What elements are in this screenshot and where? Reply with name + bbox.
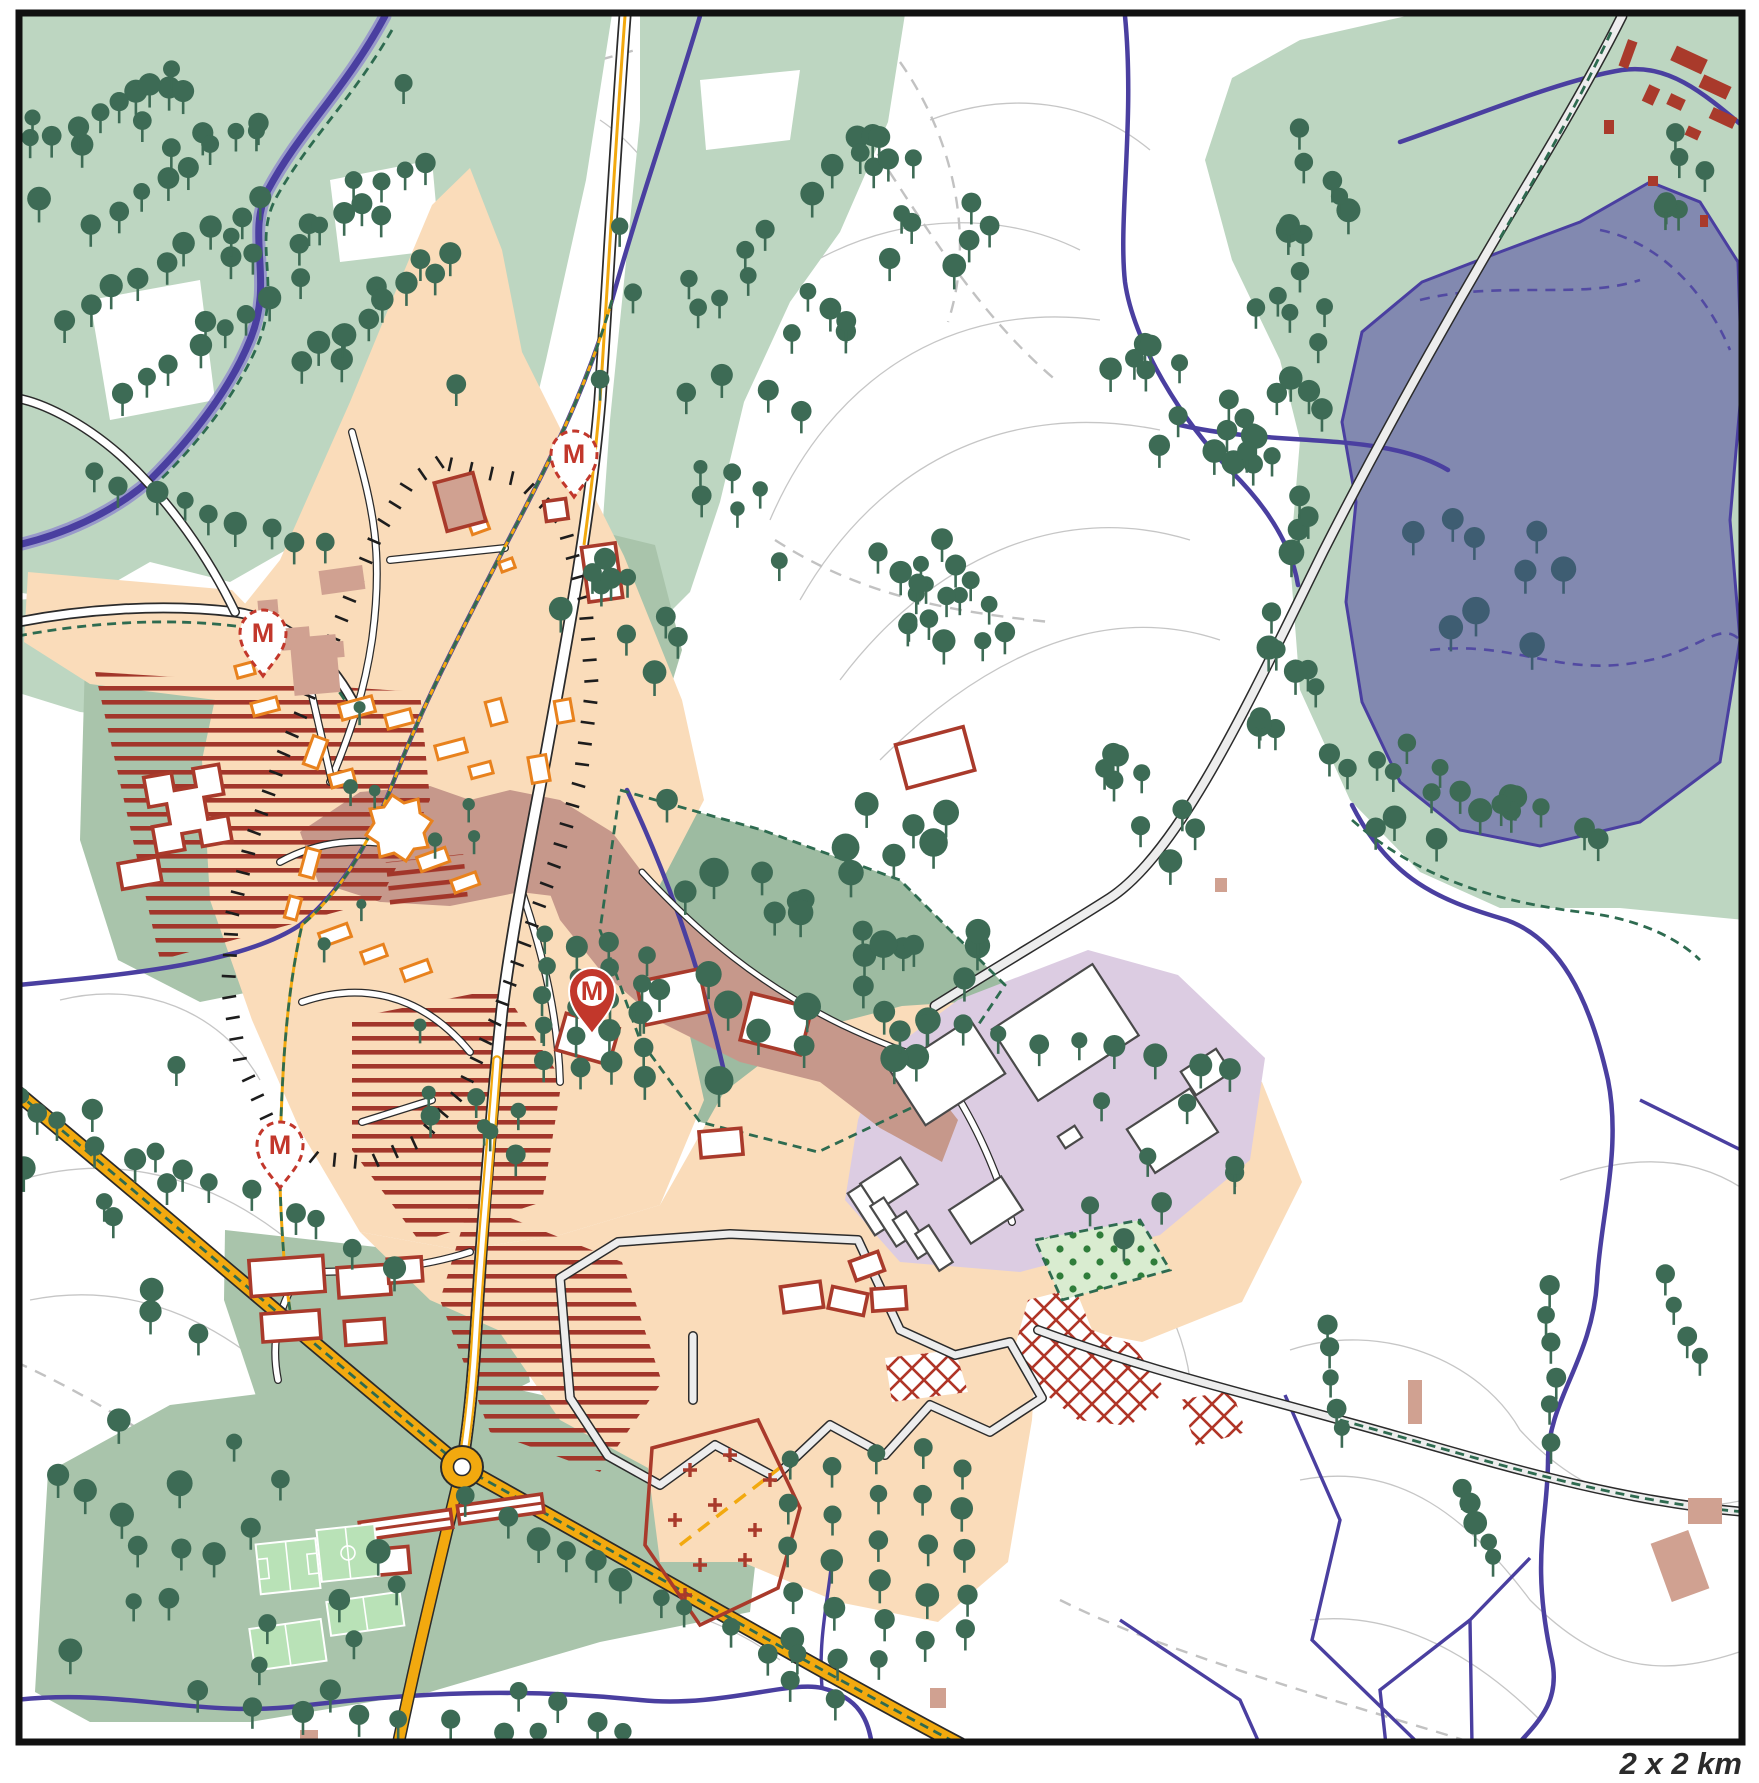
tree-icon bbox=[549, 597, 573, 621]
tree-icon bbox=[157, 1173, 177, 1193]
tree-icon bbox=[91, 103, 109, 121]
tree-icon bbox=[286, 1203, 306, 1223]
tree-icon bbox=[126, 1593, 142, 1609]
tree-icon bbox=[758, 1644, 778, 1664]
tree-icon bbox=[68, 116, 89, 137]
tree-icon bbox=[1368, 751, 1386, 769]
tree-icon bbox=[893, 205, 910, 222]
tree-icon bbox=[676, 1599, 692, 1615]
tree-icon bbox=[588, 1712, 608, 1732]
tree-icon bbox=[966, 919, 991, 944]
tree-icon bbox=[108, 477, 127, 496]
tree-icon bbox=[920, 609, 939, 628]
tree-icon bbox=[783, 324, 801, 342]
tree-icon bbox=[685, 1762, 708, 1783]
tree-icon bbox=[343, 779, 358, 794]
tree-icon bbox=[1480, 1534, 1497, 1551]
rampart-tick bbox=[355, 1155, 356, 1169]
tree-icon bbox=[100, 274, 123, 297]
tree-icon bbox=[538, 957, 556, 975]
tree-icon bbox=[1366, 817, 1386, 837]
tree-icon bbox=[740, 267, 757, 284]
tree-icon bbox=[571, 1058, 591, 1078]
tree-icon bbox=[1307, 678, 1324, 695]
tree-icon bbox=[1217, 420, 1238, 441]
tree-icon bbox=[566, 936, 588, 958]
tree-icon bbox=[677, 383, 696, 402]
tree-icon bbox=[441, 1710, 460, 1729]
tree-icon bbox=[1169, 406, 1188, 425]
tree-icon bbox=[1290, 118, 1309, 137]
tree-icon bbox=[1131, 816, 1150, 835]
tree-icon bbox=[1666, 123, 1685, 142]
tree-icon bbox=[258, 286, 281, 309]
tree-icon bbox=[674, 880, 697, 903]
tree-icon bbox=[467, 1088, 485, 1106]
tree-icon bbox=[388, 1576, 406, 1594]
tree-icon bbox=[498, 1507, 518, 1527]
tree-icon bbox=[1442, 508, 1464, 530]
tree-icon bbox=[249, 186, 271, 208]
tree-icon bbox=[96, 1193, 113, 1210]
tree-icon bbox=[1316, 298, 1333, 315]
tree-icon bbox=[653, 1589, 670, 1606]
tree-icon bbox=[85, 1136, 104, 1155]
rampart-tick bbox=[575, 763, 589, 765]
tree-icon bbox=[1677, 1326, 1697, 1346]
tree-icon bbox=[1139, 1148, 1156, 1165]
tree-icon bbox=[956, 1619, 975, 1638]
tree-icon bbox=[1172, 799, 1192, 819]
tree-icon bbox=[1219, 389, 1239, 409]
tree-icon bbox=[1514, 560, 1536, 582]
tree-icon bbox=[291, 351, 312, 372]
tree-icon bbox=[902, 814, 924, 836]
tree-icon bbox=[1463, 1511, 1487, 1535]
tree-icon bbox=[626, 1748, 649, 1771]
tree-icon bbox=[1289, 485, 1310, 506]
tree-icon bbox=[889, 1020, 911, 1042]
tree-icon bbox=[1526, 521, 1547, 542]
tree-icon bbox=[635, 1004, 652, 1021]
tree-icon bbox=[736, 241, 754, 259]
tree-icon bbox=[1546, 1368, 1566, 1388]
tree-icon bbox=[415, 153, 435, 173]
tree-icon bbox=[756, 220, 775, 239]
tree-icon bbox=[1656, 1264, 1675, 1283]
tree-icon bbox=[128, 1536, 148, 1556]
tree-icon bbox=[981, 596, 998, 613]
tree-icon bbox=[1279, 366, 1303, 390]
tree-icon bbox=[1189, 1053, 1212, 1076]
tree-icon bbox=[649, 979, 670, 1000]
tree-icon bbox=[1257, 635, 1281, 659]
tree-icon bbox=[722, 1618, 740, 1636]
rampart-tick bbox=[579, 618, 593, 619]
tree-icon bbox=[421, 1106, 441, 1126]
tree-icon bbox=[228, 123, 245, 140]
tree-icon bbox=[957, 1585, 977, 1605]
tree-icon bbox=[510, 1682, 528, 1700]
tree-icon bbox=[54, 310, 75, 331]
tree-icon bbox=[1279, 540, 1305, 566]
tree-icon bbox=[81, 214, 101, 234]
tree-icon bbox=[1541, 1395, 1558, 1412]
tree-icon bbox=[624, 283, 642, 301]
tree-icon bbox=[199, 215, 221, 237]
tree-icon bbox=[980, 216, 1000, 236]
roundabout bbox=[441, 1446, 483, 1488]
tree-icon bbox=[477, 1119, 491, 1133]
rampart-tick bbox=[584, 680, 598, 681]
tree-icon bbox=[1284, 660, 1307, 683]
tree-icon bbox=[918, 1534, 938, 1554]
tree-icon bbox=[794, 1035, 815, 1056]
metro-letter: M bbox=[563, 439, 586, 469]
tree-icon bbox=[730, 501, 744, 515]
tree-icon bbox=[1262, 602, 1281, 621]
tree-icon bbox=[373, 172, 391, 190]
tree-icon bbox=[395, 74, 413, 92]
tree-icon bbox=[870, 930, 898, 958]
tree-icon bbox=[178, 157, 199, 178]
tree-icon bbox=[1464, 527, 1485, 548]
tree-icon bbox=[1279, 214, 1300, 235]
tree-icon bbox=[696, 961, 722, 987]
tree-icon bbox=[316, 533, 335, 552]
tree-icon bbox=[919, 828, 948, 857]
tree-icon bbox=[511, 1103, 526, 1118]
tree-icon bbox=[1291, 262, 1309, 280]
tree-icon bbox=[880, 1044, 908, 1072]
tree-icon bbox=[530, 1723, 547, 1740]
tree-icon bbox=[681, 1756, 698, 1773]
tree-icon bbox=[1309, 333, 1327, 351]
tree-icon bbox=[905, 149, 922, 166]
tree-icon bbox=[369, 785, 381, 797]
tree-icon bbox=[271, 1470, 290, 1489]
tree-icon bbox=[585, 1550, 606, 1571]
tree-icon bbox=[1692, 1348, 1708, 1364]
rampart-tick bbox=[581, 639, 595, 640]
tree-icon bbox=[1237, 441, 1256, 460]
tree-icon bbox=[329, 1589, 351, 1611]
tree-icon bbox=[942, 254, 966, 278]
tree-icon bbox=[600, 568, 621, 589]
tree-icon bbox=[914, 1438, 933, 1457]
tree-icon bbox=[995, 622, 1015, 642]
tree-icon bbox=[446, 374, 466, 394]
tree-icon bbox=[788, 900, 813, 925]
rampart-tick bbox=[334, 1153, 335, 1167]
tree-icon bbox=[916, 1631, 935, 1650]
tree-icon bbox=[110, 92, 129, 111]
map-canvas: MMMM 2 x 2 km bbox=[0, 0, 1759, 1783]
tree-icon bbox=[1327, 1399, 1347, 1419]
tree-icon bbox=[778, 1537, 797, 1556]
tree-icon bbox=[1319, 743, 1340, 764]
rampart-tick bbox=[581, 722, 595, 724]
tree-icon bbox=[535, 1017, 552, 1034]
tree-icon bbox=[217, 319, 234, 336]
tree-icon bbox=[349, 1705, 369, 1725]
tree-icon bbox=[1656, 192, 1676, 212]
tree-icon bbox=[692, 486, 712, 506]
tree-icon bbox=[354, 701, 366, 713]
tree-icon bbox=[953, 1459, 971, 1477]
tree-icon bbox=[527, 1527, 551, 1551]
tree-icon bbox=[1423, 783, 1441, 801]
tree-icon bbox=[583, 563, 602, 582]
tree-icon bbox=[202, 1542, 225, 1565]
tree-icon bbox=[1311, 398, 1333, 420]
tree-icon bbox=[689, 299, 707, 317]
tree-icon bbox=[536, 925, 553, 942]
tree-icon bbox=[109, 202, 129, 222]
tree-icon bbox=[74, 1479, 97, 1502]
tree-icon bbox=[318, 937, 331, 950]
tree-icon bbox=[263, 519, 282, 538]
tree-icon bbox=[1459, 1493, 1480, 1514]
tree-icon bbox=[258, 1614, 276, 1632]
tree-icon bbox=[779, 1494, 798, 1513]
tree-icon bbox=[851, 143, 870, 162]
tree-icon bbox=[868, 542, 887, 561]
tree-icon bbox=[371, 288, 394, 311]
tree-icon bbox=[133, 111, 152, 130]
tree-icon bbox=[133, 183, 150, 200]
tree-icon bbox=[158, 167, 180, 189]
tree-icon bbox=[771, 552, 788, 569]
tree-icon bbox=[1149, 435, 1170, 456]
tree-icon bbox=[1250, 707, 1271, 728]
tree-icon bbox=[1093, 1092, 1110, 1109]
tree-icon bbox=[878, 148, 899, 169]
tree-icon bbox=[371, 206, 391, 226]
tree-icon bbox=[723, 463, 741, 481]
tree-icon bbox=[1298, 506, 1319, 527]
tree-icon bbox=[656, 789, 678, 811]
tree-icon bbox=[1334, 1420, 1350, 1436]
tree-icon bbox=[201, 135, 219, 153]
tree-icon bbox=[917, 1014, 937, 1034]
tree-icon bbox=[1294, 153, 1313, 172]
tree-icon bbox=[1670, 148, 1688, 166]
tree-icon bbox=[548, 1692, 567, 1711]
tree-icon bbox=[611, 218, 628, 235]
tree-icon bbox=[1125, 349, 1144, 368]
tree-icon bbox=[954, 1014, 973, 1033]
tree-icon bbox=[699, 858, 728, 887]
tree-icon bbox=[284, 532, 304, 552]
tree-icon bbox=[468, 830, 480, 842]
tree-icon bbox=[1133, 764, 1150, 781]
tree-icon bbox=[591, 370, 610, 389]
tree-icon bbox=[1542, 1433, 1561, 1452]
tree-icon bbox=[836, 311, 856, 331]
scale-label: 2 x 2 km bbox=[1619, 1746, 1742, 1781]
tree-icon bbox=[311, 217, 328, 234]
rampart-tick bbox=[224, 934, 238, 935]
tree-icon bbox=[167, 1470, 193, 1496]
tree-icon bbox=[422, 1086, 436, 1100]
tree-icon bbox=[506, 1145, 526, 1165]
tree-icon bbox=[345, 171, 363, 189]
tree-icon bbox=[189, 1324, 209, 1344]
tree-icon bbox=[1398, 734, 1416, 752]
tree-icon bbox=[356, 899, 366, 909]
tree-icon bbox=[853, 976, 874, 997]
tree-icon bbox=[345, 1630, 362, 1647]
tree-icon bbox=[791, 401, 811, 421]
tree-icon bbox=[1462, 597, 1490, 625]
topographic-map: MMMM 2 x 2 km bbox=[0, 0, 1759, 1783]
tree-icon bbox=[638, 946, 656, 964]
tree-icon bbox=[1103, 1035, 1125, 1057]
tree-icon bbox=[22, 129, 39, 146]
tree-icon bbox=[112, 383, 133, 404]
tree-icon bbox=[359, 309, 380, 330]
tree-icon bbox=[428, 832, 442, 846]
tree-icon bbox=[649, 1746, 668, 1765]
tree-icon bbox=[47, 1464, 69, 1486]
tree-icon bbox=[138, 73, 160, 95]
tree-icon bbox=[1140, 335, 1162, 357]
tree-icon bbox=[1383, 805, 1407, 829]
tree-icon bbox=[904, 935, 924, 955]
tree-icon bbox=[171, 1538, 191, 1558]
tree-icon bbox=[1426, 828, 1448, 850]
tree-icon bbox=[643, 660, 667, 684]
tree-icon bbox=[800, 283, 817, 300]
tree-icon bbox=[307, 331, 330, 354]
tree-icon bbox=[668, 627, 688, 647]
tree-icon bbox=[42, 126, 62, 146]
tree-icon bbox=[1537, 1306, 1555, 1324]
tree-icon bbox=[290, 234, 310, 254]
tree-icon bbox=[931, 528, 953, 550]
tree-icon bbox=[633, 975, 651, 993]
tree-icon bbox=[248, 113, 268, 133]
tree-icon bbox=[1113, 1228, 1134, 1249]
tree-icon bbox=[693, 460, 707, 474]
tree-icon bbox=[232, 207, 252, 227]
tree-icon bbox=[104, 1207, 123, 1226]
tree-icon bbox=[945, 555, 966, 576]
tree-icon bbox=[788, 1645, 806, 1663]
rampart-tick bbox=[583, 660, 597, 661]
tree-icon bbox=[821, 1549, 844, 1572]
tree-icon bbox=[868, 126, 890, 148]
tree-icon bbox=[838, 860, 864, 886]
tree-icon bbox=[1468, 798, 1492, 822]
tree-icon bbox=[138, 368, 156, 386]
tree-icon bbox=[27, 187, 51, 211]
tree-icon bbox=[634, 1066, 656, 1088]
tree-icon bbox=[953, 1539, 975, 1561]
tree-icon bbox=[746, 1019, 770, 1043]
tree-icon bbox=[146, 481, 168, 503]
tree-icon bbox=[900, 613, 917, 630]
tree-icon bbox=[172, 232, 195, 255]
metro-letter: M bbox=[252, 618, 275, 648]
tree-icon bbox=[867, 1444, 885, 1462]
tree-icon bbox=[226, 1434, 242, 1450]
tree-icon bbox=[869, 1569, 891, 1591]
tree-icon bbox=[85, 462, 103, 480]
tree-icon bbox=[241, 1518, 261, 1538]
tree-icon bbox=[291, 268, 310, 287]
tree-icon bbox=[908, 574, 927, 593]
tree-icon bbox=[974, 632, 991, 649]
tree-icon bbox=[1532, 798, 1549, 815]
rampart-tick bbox=[223, 955, 237, 956]
tree-icon bbox=[162, 138, 181, 157]
tree-icon bbox=[783, 1582, 803, 1602]
tree-icon bbox=[1081, 1196, 1099, 1214]
tree-icon bbox=[1551, 556, 1576, 581]
tree-icon bbox=[1247, 298, 1266, 317]
tree-icon bbox=[1491, 795, 1510, 814]
tree-icon bbox=[1317, 1315, 1337, 1335]
tree-icon bbox=[705, 1066, 734, 1095]
tree-icon bbox=[557, 1541, 576, 1560]
tree-icon bbox=[140, 1278, 164, 1302]
tree-icon bbox=[1159, 849, 1183, 873]
tree-icon bbox=[855, 792, 879, 816]
tree-icon bbox=[937, 587, 955, 605]
tree-icon bbox=[1219, 1058, 1241, 1080]
tree-icon bbox=[913, 1485, 932, 1504]
tree-icon bbox=[961, 193, 981, 213]
tree-icon bbox=[800, 182, 824, 206]
tree-icon bbox=[159, 1588, 180, 1609]
tree-icon bbox=[1574, 818, 1595, 839]
tree-icon bbox=[751, 862, 773, 884]
tree-icon bbox=[1099, 357, 1122, 380]
tree-icon bbox=[832, 834, 860, 862]
tree-icon bbox=[853, 921, 873, 941]
tree-icon bbox=[463, 798, 475, 810]
tree-icon bbox=[599, 932, 619, 952]
tree-icon bbox=[873, 1001, 895, 1023]
tree-icon bbox=[711, 290, 728, 307]
tree-icon bbox=[251, 1657, 268, 1674]
tree-icon bbox=[27, 1103, 47, 1123]
tree-icon bbox=[889, 561, 911, 583]
tree-icon bbox=[383, 1256, 406, 1279]
tree-icon bbox=[199, 505, 218, 524]
tree-icon bbox=[601, 1051, 623, 1073]
tree-icon bbox=[456, 1486, 475, 1505]
tree-icon bbox=[617, 625, 636, 644]
tree-icon bbox=[711, 364, 733, 386]
tree-icon bbox=[224, 512, 247, 535]
tree-icon bbox=[1338, 759, 1357, 778]
tree-icon bbox=[25, 110, 41, 126]
tree-icon bbox=[200, 1173, 218, 1191]
tree-icon bbox=[823, 1457, 842, 1476]
tree-icon bbox=[1151, 1192, 1172, 1213]
tree-icon bbox=[533, 986, 551, 1004]
tree-icon bbox=[758, 380, 779, 401]
metro-letter: M bbox=[269, 1130, 292, 1160]
tree-icon bbox=[1695, 161, 1714, 180]
tree-icon bbox=[177, 492, 194, 509]
tree-icon bbox=[753, 481, 768, 496]
tree-icon bbox=[172, 80, 194, 102]
tree-icon bbox=[609, 1568, 633, 1592]
